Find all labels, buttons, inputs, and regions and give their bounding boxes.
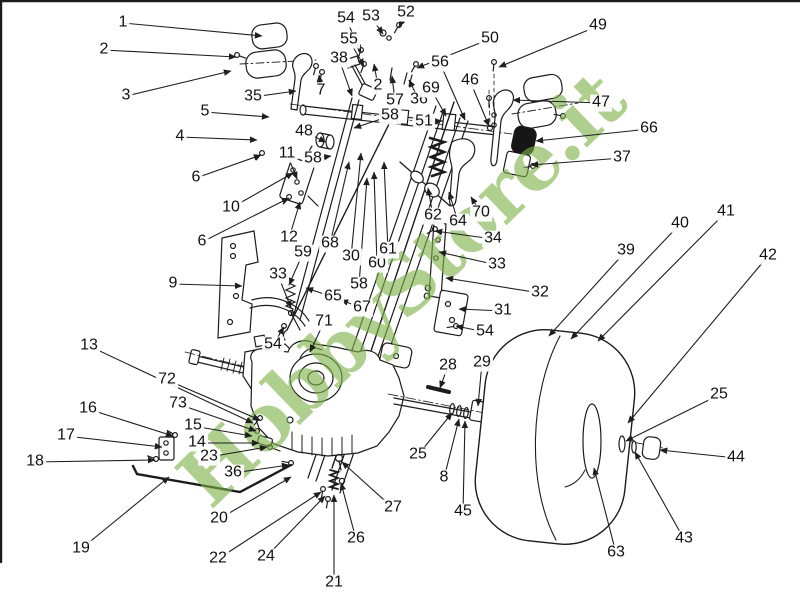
callout-label-51-55: 51	[413, 114, 435, 131]
callout-label-29-31: 29	[471, 355, 493, 372]
callout-label-47-51: 47	[590, 95, 612, 112]
callout-label-13-14: 13	[78, 338, 100, 355]
callout-label-39-43: 39	[615, 243, 637, 260]
callout-label-67-75: 67	[351, 300, 373, 317]
callout-label-73-81: 73	[167, 396, 189, 413]
callout-label-7-8: 7	[315, 83, 328, 100]
callout-label-71-79: 71	[313, 314, 335, 331]
callout-label-20-21: 20	[208, 511, 230, 528]
callout-label-40-44: 40	[669, 216, 691, 233]
callout-label-5-5: 5	[199, 104, 212, 121]
callout-label-8-9: 8	[438, 470, 451, 487]
callout-label-44-48: 44	[725, 450, 747, 467]
callout-label-32-34: 32	[529, 285, 551, 302]
callout-label-58-64: 58	[302, 151, 324, 168]
callout-label-6-6: 6	[190, 170, 203, 187]
callout-label-33-35: 33	[267, 267, 289, 284]
callout-label-35-38: 35	[242, 89, 264, 106]
callout-label-54-58: 54	[335, 11, 357, 28]
callout-label-11-12: 11	[277, 146, 298, 163]
callout-label-53-57: 53	[360, 9, 382, 26]
callout-label-41-45: 41	[715, 204, 737, 221]
callout-label-31-33: 31	[492, 303, 514, 320]
callout-label-50-54: 50	[479, 31, 501, 48]
callout-label-19-20: 19	[70, 541, 92, 558]
callout-label-55-61: 55	[338, 32, 360, 49]
callout-label-22-23: 22	[207, 551, 229, 568]
callout-label-65-73: 65	[322, 289, 344, 306]
callout-label-4-4: 4	[174, 129, 187, 146]
callout-label-33-36: 33	[486, 257, 508, 274]
callout-label-9-10: 9	[167, 276, 180, 293]
callout-label-58-65: 58	[379, 108, 401, 125]
callout-labels: 1223456678910111213141516171819202122232…	[0, 0, 800, 600]
callout-label-64-72: 64	[447, 214, 469, 231]
callout-label-38-42: 38	[328, 51, 350, 68]
callout-label-62-70: 62	[422, 208, 444, 225]
callout-label-52-56: 52	[395, 5, 417, 22]
callout-label-16-17: 16	[77, 401, 99, 418]
callout-label-42-46: 42	[757, 248, 779, 265]
callout-label-27-29: 27	[382, 500, 404, 517]
callout-label-63-71: 63	[605, 545, 627, 562]
callout-label-54-59: 54	[474, 324, 496, 341]
callout-label-61-69: 61	[377, 242, 399, 259]
callout-label-70-78: 70	[470, 205, 492, 222]
callout-label-43-47: 43	[673, 531, 695, 548]
callout-label-21-22: 21	[323, 575, 345, 592]
callout-label-17-18: 17	[55, 428, 77, 445]
callout-label-36-40: 36	[222, 465, 244, 482]
callout-label-72-80: 72	[156, 372, 178, 389]
callout-label-58-66: 58	[348, 277, 370, 294]
callout-label-1-0: 1	[117, 15, 130, 32]
callout-label-23-24: 23	[198, 449, 220, 466]
callout-label-69-77: 69	[420, 81, 442, 98]
callout-label-46-50: 46	[459, 73, 481, 90]
callout-label-59-67: 59	[292, 245, 314, 262]
callout-label-24-25: 24	[255, 549, 277, 566]
callout-label-3-3: 3	[120, 88, 133, 105]
callout-label-2-2: 2	[372, 78, 385, 95]
callout-label-25-27: 25	[708, 387, 730, 404]
callout-label-45-49: 45	[452, 504, 474, 521]
callout-label-25-26: 25	[407, 447, 429, 464]
callout-label-10-11: 10	[220, 200, 242, 217]
callout-label-28-30: 28	[437, 358, 459, 375]
callout-label-56-62: 56	[429, 55, 451, 72]
callout-label-49-53: 49	[587, 18, 609, 35]
callout-label-34-37: 34	[482, 231, 504, 248]
callout-label-26-28: 26	[345, 531, 367, 548]
callout-label-54-60: 54	[262, 337, 284, 354]
callout-label-18-19: 18	[24, 454, 46, 471]
callout-label-2-1: 2	[98, 42, 111, 59]
callout-label-68-76: 68	[319, 236, 341, 253]
callout-label-48-52: 48	[293, 124, 315, 141]
callout-label-66-74: 66	[638, 121, 660, 138]
callout-label-37-41: 37	[611, 150, 633, 167]
callout-label-6-7: 6	[196, 234, 209, 251]
exploded-parts-diagram: HobbyStore.it 12234566789101112131415161…	[0, 0, 800, 600]
callout-label-15-16: 15	[182, 418, 204, 435]
callout-label-30-32: 30	[340, 249, 362, 266]
